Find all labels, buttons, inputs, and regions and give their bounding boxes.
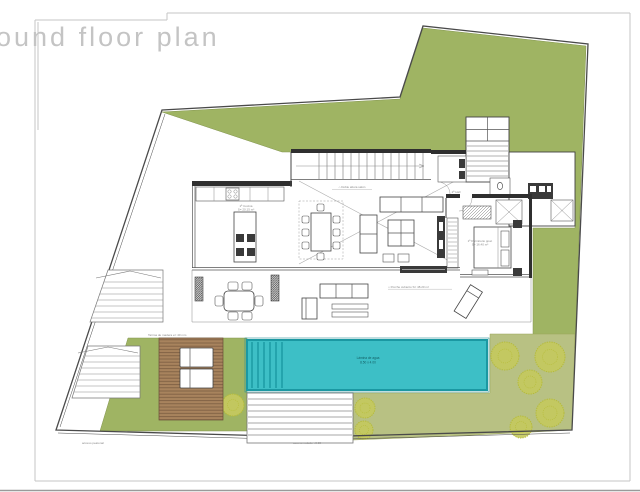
bedroom-area: S= 16.40 m² bbox=[472, 243, 488, 247]
slat-screen bbox=[447, 218, 458, 268]
tree bbox=[535, 342, 565, 372]
exterior-staircase bbox=[466, 117, 509, 182]
porch-label: ⌂ Porche cubierto S= 48.20 m² bbox=[388, 285, 429, 289]
driveway-ramp-lower bbox=[68, 346, 142, 398]
dresser bbox=[463, 206, 491, 219]
bathroom bbox=[438, 156, 466, 194]
tree bbox=[355, 398, 375, 418]
pillar bbox=[271, 275, 279, 301]
bed bbox=[474, 220, 522, 276]
tree bbox=[491, 342, 519, 370]
sofa-top bbox=[380, 197, 443, 212]
road-access-label: acceso rodado +0.00 bbox=[293, 441, 321, 445]
outdoor-lounge bbox=[302, 284, 368, 319]
pool-dimension: 8.50 x 4.00 bbox=[360, 361, 376, 365]
page-title: ound floor plan bbox=[0, 22, 220, 52]
coffee-table bbox=[388, 220, 414, 246]
wardrobe bbox=[551, 200, 573, 221]
pillar bbox=[195, 277, 203, 301]
kitchen-island bbox=[234, 212, 256, 262]
terrace: ⌂ Porche cubierto S= 48.20 m² bbox=[192, 270, 531, 322]
deck-note: Tarima de madera e= 40 mm bbox=[148, 333, 187, 337]
wood-deck bbox=[159, 338, 223, 420]
hall-label: 2ª Hall bbox=[452, 190, 461, 194]
floor-plan-canvas: ound floor plan bbox=[0, 0, 640, 492]
hob-icon bbox=[226, 188, 239, 200]
tree bbox=[222, 394, 244, 416]
bed-bench bbox=[472, 270, 488, 275]
pedestrian-access-label: acceso peatonal bbox=[82, 441, 104, 445]
sofa-left bbox=[360, 215, 377, 253]
interior-staircase bbox=[291, 149, 431, 180]
tree bbox=[536, 399, 564, 427]
garden-steps bbox=[247, 393, 353, 443]
sun-lounger bbox=[454, 285, 482, 319]
outdoor-dining-set bbox=[215, 282, 263, 320]
pool-label: Lámina de agua bbox=[357, 356, 380, 360]
tv-unit bbox=[437, 216, 445, 258]
kitchen: 1ª Cocina S= 20.15 m² bbox=[192, 152, 292, 268]
void-label: ⌂ Doble altura salón bbox=[339, 185, 366, 189]
swimming-pool: Lámina de agua 8.50 x 4.00 bbox=[245, 338, 489, 392]
pouf bbox=[398, 254, 409, 262]
driveway-ramp-upper bbox=[85, 270, 165, 322]
kitchen-area: S= 20.15 m² bbox=[238, 208, 254, 212]
bedroom: 1ª Dormitorio ppal. S= 16.40 m² bbox=[446, 194, 532, 278]
pouf bbox=[383, 254, 394, 262]
dining-set bbox=[299, 201, 343, 260]
terrace-bench bbox=[400, 266, 447, 273]
tree bbox=[518, 370, 542, 394]
